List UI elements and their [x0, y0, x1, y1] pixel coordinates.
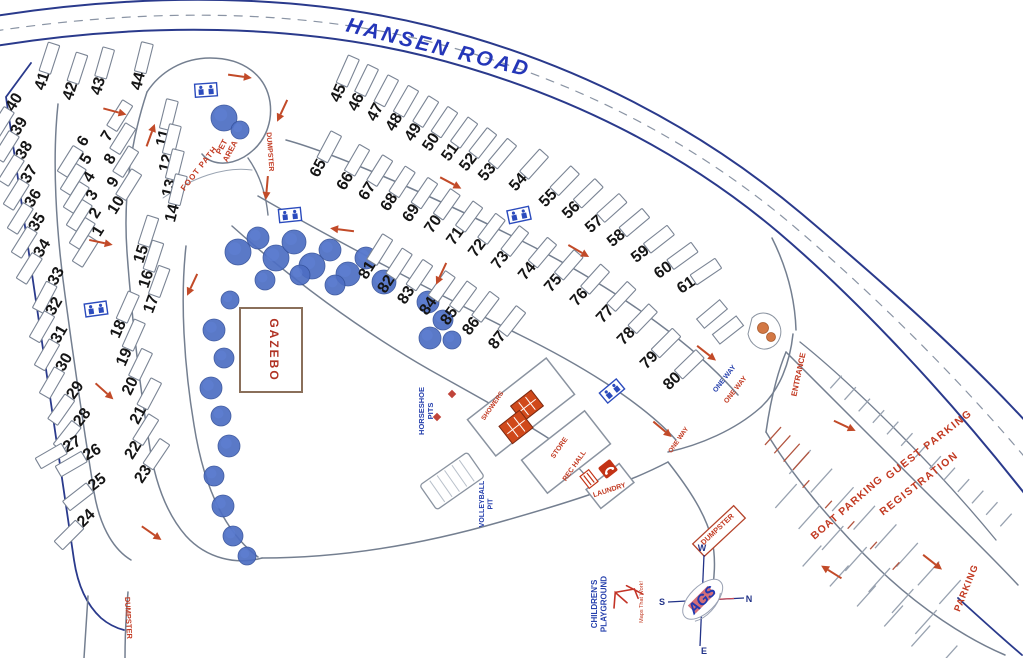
site-pad	[469, 128, 497, 159]
tree-icon	[212, 495, 234, 517]
horseshoe-pit-icon	[448, 390, 456, 398]
parking-stripe	[825, 501, 832, 508]
parking-stripe	[774, 435, 790, 453]
parking-stripe	[1000, 514, 1011, 527]
parking-stripe	[884, 606, 903, 627]
tree-icon	[325, 275, 345, 295]
parking-stripe	[939, 646, 958, 658]
restroom-icon	[278, 207, 301, 222]
site-pad	[431, 106, 458, 138]
tree-icon	[319, 239, 341, 261]
site-80: 80	[660, 348, 706, 394]
volleyball-court	[420, 452, 485, 510]
site-rect-unlabeled	[712, 316, 743, 344]
site-pad	[619, 208, 650, 236]
label-foot-path: FOOT PATH	[179, 144, 219, 192]
tree-icon	[214, 348, 234, 368]
parking-stripe	[854, 506, 875, 530]
site-54: 54	[506, 148, 551, 195]
tree-icon	[231, 121, 249, 139]
site-pad	[344, 144, 369, 176]
tree-icon	[221, 291, 239, 309]
direction-arrow-icon	[228, 71, 253, 82]
road-path-17	[766, 432, 1005, 655]
restroom-icon	[599, 379, 624, 403]
tree-icon	[211, 406, 231, 426]
site-pad	[528, 237, 556, 268]
tree-icon	[247, 227, 269, 249]
parking-stripe	[893, 562, 900, 569]
site-pad	[501, 226, 529, 257]
road-path-18	[766, 352, 786, 432]
label-maps-that-work: Maps That Work!	[639, 581, 645, 623]
site-pad	[411, 177, 438, 209]
parking-stripe	[803, 480, 810, 487]
site-pad	[550, 166, 579, 196]
road-path-24	[800, 342, 996, 540]
site-79: 79	[637, 327, 683, 373]
label-text: GAZEBO	[267, 318, 281, 381]
site-pad	[449, 281, 476, 312]
restroom-icon	[195, 83, 218, 98]
label-text: CHILDREN'SPLAYGROUND	[590, 576, 609, 632]
site-pad	[455, 201, 482, 232]
direction-arrow-icon	[819, 562, 844, 582]
compass-s: S	[659, 597, 665, 607]
parking-stripe	[859, 399, 870, 412]
direction-arrow-icon	[651, 419, 675, 441]
entrance-tree-icon	[767, 333, 776, 342]
label-text: DUMPSTER	[123, 597, 134, 640]
site-pad	[554, 250, 583, 281]
parking-stripe	[845, 547, 866, 571]
site-pad	[690, 258, 722, 285]
tree-icon	[238, 547, 256, 565]
road-path-19	[958, 598, 1022, 655]
site-rect-unlabeled	[697, 300, 728, 328]
compass-rose: AGSWESN	[659, 543, 752, 656]
site-pad	[355, 64, 379, 96]
parking-stripe	[784, 444, 800, 462]
label-text: DUMPSTER	[265, 132, 275, 172]
tree-icon	[282, 230, 306, 254]
parking-stripe	[875, 524, 896, 548]
site-pad	[597, 193, 627, 222]
compass-w: W	[698, 543, 707, 553]
parking-stripe	[844, 387, 855, 400]
site-pad	[406, 259, 433, 291]
parking-stripe	[901, 433, 912, 446]
compass-e: E	[701, 646, 707, 656]
direction-arrow-icon	[273, 98, 290, 123]
site-pad	[393, 85, 418, 117]
site-pad	[651, 328, 681, 358]
parking-stripe	[986, 502, 997, 515]
tree-icon	[419, 327, 441, 349]
site-pad	[581, 264, 610, 294]
map-canvas: 4039383736353433323130292827262524414243…	[0, 0, 1023, 658]
parking-stripe	[857, 586, 876, 607]
restroom-icon	[84, 301, 108, 317]
tree-icon	[203, 319, 225, 341]
site-pad	[520, 149, 549, 179]
label-text: VOLLEYBALLPIT	[479, 480, 495, 527]
direction-arrow-icon	[183, 272, 200, 297]
site-pad	[374, 75, 399, 107]
site-pad	[428, 271, 455, 302]
tree-icon	[223, 526, 243, 546]
road-path-21	[84, 596, 88, 658]
site-pad	[498, 306, 526, 337]
parking-stripe	[972, 491, 983, 504]
site-77: 77	[593, 280, 638, 327]
site-map: 4039383736353433323130292827262524414243…	[0, 0, 1023, 658]
road-path-7	[248, 158, 268, 215]
site-43: 43	[88, 46, 118, 97]
parking-stripe	[811, 469, 832, 493]
label-children-s-playground: CHILDREN'SPLAYGROUND	[590, 576, 609, 632]
site-pad	[116, 291, 139, 323]
label-horseshoe-pits: HORSESHOEPITS	[417, 387, 435, 435]
compass-n: N	[746, 594, 753, 604]
direction-arrow-icon	[140, 523, 164, 543]
site-pad	[386, 248, 412, 280]
tree-icon	[218, 435, 240, 457]
parking-stripe	[848, 521, 855, 528]
site-pad	[607, 281, 636, 311]
tree-icon	[225, 239, 251, 265]
restroom-icon	[507, 206, 531, 223]
direction-arrow-icon	[330, 224, 355, 235]
tree-icon	[204, 466, 224, 486]
site-pad	[488, 138, 516, 169]
site-65: 65	[307, 130, 344, 180]
site-pad	[389, 166, 415, 198]
site-pad	[573, 179, 603, 208]
label-volleyball-pit: VOLLEYBALLPIT	[479, 480, 495, 527]
site-pad	[413, 96, 439, 128]
direction-arrow-icon	[93, 380, 116, 402]
site-pad	[67, 52, 88, 84]
label-gazebo: GAZEBO	[267, 318, 281, 381]
site-pad	[143, 438, 170, 470]
site-41: 41	[32, 41, 63, 92]
site-42: 42	[60, 51, 91, 102]
site-pad	[478, 213, 506, 244]
entrance-tree-icon	[758, 323, 769, 334]
site-pad	[336, 55, 359, 87]
label-text: FOOT PATH	[179, 144, 219, 192]
site-pad	[134, 42, 153, 74]
parking-stripe	[896, 543, 917, 567]
parking-stripe	[869, 568, 890, 592]
site-24: 24	[53, 506, 99, 552]
road-path-15	[772, 238, 796, 330]
site-87: 87	[485, 304, 528, 352]
label-dumpster: DUMPSTER	[265, 132, 275, 172]
tree-icon	[255, 270, 275, 290]
tree-icon	[200, 377, 222, 399]
parking-stripe	[830, 376, 841, 389]
tree-icon	[290, 265, 310, 285]
parking-stripe	[775, 484, 796, 508]
label-text: HORSESHOEPITS	[417, 387, 435, 435]
parking-stripe	[793, 452, 809, 470]
tree-icon	[443, 331, 461, 349]
label-text: Maps That Work!	[639, 581, 645, 623]
site-pad	[95, 47, 115, 79]
site-pad	[433, 189, 460, 220]
site-pad	[643, 225, 674, 253]
site-78: 78	[614, 302, 660, 348]
site-pad	[674, 350, 704, 379]
parking-stripe	[892, 589, 913, 613]
site-pad	[39, 42, 60, 74]
site-pad	[667, 242, 698, 269]
parking-stripe	[803, 546, 822, 567]
label-dumpster: DUMPSTER	[123, 597, 134, 640]
parking-stripe	[958, 479, 969, 492]
site-pad	[450, 117, 477, 148]
